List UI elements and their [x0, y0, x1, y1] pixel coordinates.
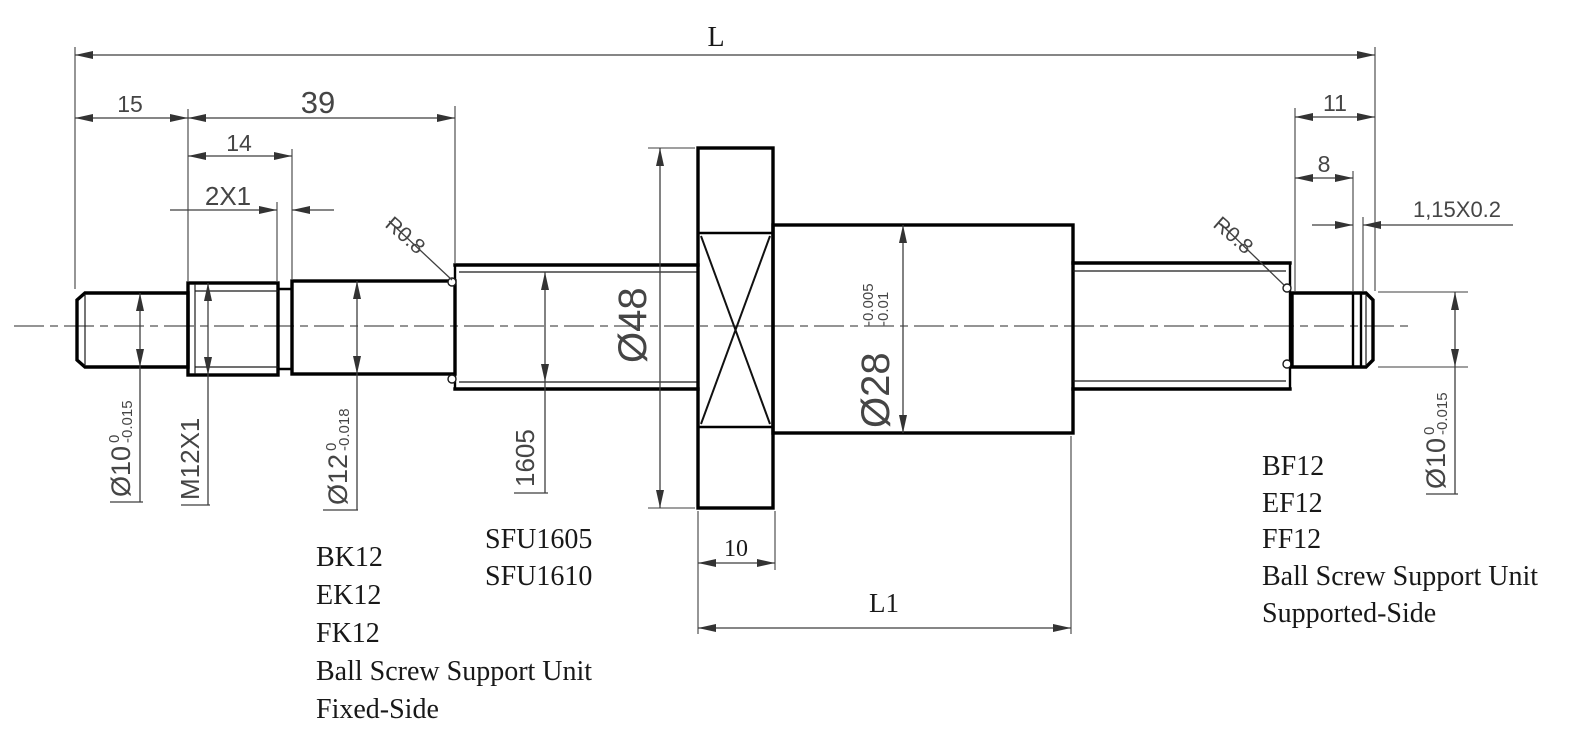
note-bf12: BF12 — [1262, 451, 1324, 482]
dim-groove-2x1: 2X1 — [205, 181, 251, 211]
dia-journal-value: Ø12 — [323, 454, 353, 505]
note-ff12: FF12 — [1262, 524, 1321, 555]
thread-section — [188, 283, 278, 375]
dia-nut-value: Ø28 — [854, 352, 898, 428]
dia-flange-value: Ø48 — [611, 287, 655, 363]
note-ef12: EF12 — [1262, 488, 1323, 519]
dia-journal-label: Ø12 0 -0.018 — [323, 408, 353, 505]
note-supported-side: BF12 EF12 FF12 Ball Screw Support Unit S… — [1262, 451, 1538, 629]
note-sfu1610: SFU1610 — [485, 561, 592, 592]
dim-15: 15 — [117, 91, 143, 117]
dim-flange-width: 10 — [724, 536, 748, 562]
note-ek12: EK12 — [316, 580, 381, 611]
left-end-shaft — [77, 293, 188, 367]
dim-groove-115x02: 1,15X0.2 — [1413, 197, 1501, 222]
dia-right-end-value: Ø10 — [1421, 438, 1451, 489]
dia-nut-label: Ø28 -0.005 -0.01 — [854, 283, 898, 428]
nut-body — [773, 225, 1073, 433]
dia-nut-tol-lower: -0.01 — [875, 292, 892, 326]
note-supported-side: Supported-Side — [1262, 598, 1436, 629]
dia-thread-label: M12X1 — [175, 418, 205, 500]
ballscrew-technical-drawing: L 15 39 14 2X1 11 8 1,15X0.2 R0.8 R0.8 1… — [0, 0, 1579, 749]
dia-screw-code-value: 1605 — [510, 429, 540, 487]
journal-section — [292, 281, 455, 374]
drawing-canvas: L 15 39 14 2X1 11 8 1,15X0.2 R0.8 R0.8 1… — [0, 0, 1579, 749]
dim-39: 39 — [301, 85, 335, 120]
note-fixed-unit: Ball Screw Support Unit — [316, 656, 592, 687]
dim-overall-length: L — [707, 22, 724, 53]
dia-thread-value: M12X1 — [175, 418, 205, 500]
note-sfu1605: SFU1605 — [485, 524, 592, 555]
note-supported-unit: Ball Screw Support Unit — [1262, 561, 1538, 592]
dim-8: 8 — [1318, 151, 1331, 177]
dim-nut-length: L1 — [869, 588, 899, 618]
dim-14: 14 — [226, 130, 252, 156]
fillet-left-bottom — [448, 375, 456, 383]
dia-left-end-tol-lower: -0.015 — [119, 400, 136, 443]
dia-left-end-value: Ø10 — [106, 446, 136, 497]
dia-right-end-tol-lower: -0.015 — [1434, 392, 1451, 435]
note-screw-models: SFU1605 SFU1610 — [485, 524, 592, 592]
fillet-right-bottom — [1283, 360, 1291, 368]
dia-flange-label: Ø48 — [611, 287, 655, 363]
note-fixed-side: Fixed-Side — [316, 694, 439, 725]
dim-11: 11 — [1323, 90, 1347, 116]
dia-left-end-label: Ø10 0 -0.015 — [106, 400, 136, 497]
dia-journal-tol-lower: -0.018 — [336, 408, 353, 451]
note-bk12: BK12 — [316, 542, 383, 573]
note-fk12: FK12 — [316, 618, 380, 649]
dia-right-end-label: Ø10 0 -0.015 — [1421, 392, 1451, 489]
dia-screw-code-label: 1605 — [510, 429, 540, 487]
